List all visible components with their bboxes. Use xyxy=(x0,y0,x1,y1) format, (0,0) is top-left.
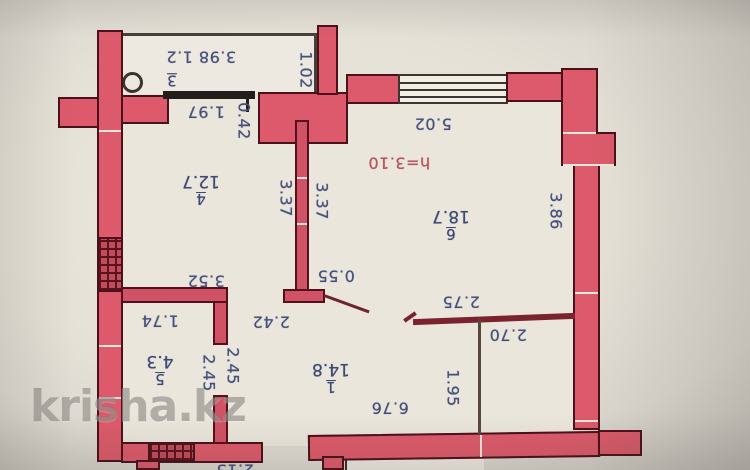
partition-rooms-4-6 xyxy=(295,120,309,292)
wall-tick xyxy=(563,164,614,166)
room-5-area: 4.3 xyxy=(146,351,173,371)
balcony-door-unit xyxy=(163,91,255,99)
dim-hall-width: 2.42 xyxy=(252,313,290,332)
outer-wall-bottomright-stub xyxy=(598,430,642,456)
room-1-label: 1 14.8 xyxy=(312,359,350,395)
wall-tick xyxy=(99,130,121,132)
room-3-label: 3 xyxy=(167,72,177,89)
room-1-area: 14.8 xyxy=(312,359,350,379)
wall-tick xyxy=(297,223,307,225)
ceiling-height-note: h=3.10 xyxy=(368,154,430,173)
dim-bottom-partial: 2.13 xyxy=(216,461,254,470)
wall-tick xyxy=(480,435,482,457)
dim-balcony-door: 1.97 xyxy=(187,103,225,122)
dim-wall-042: 0.42 xyxy=(235,102,254,140)
wall-stub-right-of-balcony xyxy=(317,25,338,95)
dim-bath-width: 2.75 xyxy=(442,293,480,312)
wall-tick xyxy=(575,292,598,294)
outer-wall-right-step xyxy=(561,132,616,166)
dim-room5-depth-a: 2.45 xyxy=(224,347,243,385)
outer-wall-right-upper xyxy=(561,68,598,134)
outer-wall-topleft-stub xyxy=(58,97,99,128)
window-symbol xyxy=(398,74,508,104)
krisha-watermark: krisha.kz xyxy=(30,381,246,432)
wall-under-balcony-left xyxy=(121,95,169,124)
dim-room6-width: 5.02 xyxy=(414,115,452,134)
circle-symbol-icon xyxy=(122,72,143,93)
room-6-area: 18.7 xyxy=(432,206,470,226)
balcony-outline-top xyxy=(121,33,317,36)
partition-foot-room6-door xyxy=(283,289,325,303)
outer-wall-bottom-right xyxy=(308,431,600,461)
vent-shaft-symbol-bottom xyxy=(148,443,195,462)
dim-balcony-size: 3.98 1.2 xyxy=(166,48,236,67)
floorplan-photo: 3.98 1.2 1.02 1.97 0.42 3.37 3.37 5.02 h… xyxy=(0,0,750,470)
vent-shaft-symbol-left xyxy=(97,237,123,292)
room-1-number: 1 xyxy=(312,379,350,396)
dim-room5-width: 1.74 xyxy=(141,312,179,331)
room-6-label: 6 18.7 xyxy=(432,206,470,242)
cutoff-room-below xyxy=(345,459,484,470)
outer-wall-right xyxy=(573,164,600,430)
wall-tick xyxy=(575,420,598,422)
dim-337-right: 3.37 xyxy=(313,182,332,220)
dim-door-stub: 0.55 xyxy=(317,267,355,286)
wall-tick xyxy=(297,177,307,179)
dim-337-left: 3.37 xyxy=(277,179,296,217)
bottom-mid-down-stub xyxy=(322,456,344,470)
dim-hall-length: 6.76 xyxy=(371,399,409,418)
room-4-label: 4 12.7 xyxy=(182,171,220,207)
wall-tick xyxy=(563,132,596,134)
thin-partition-line xyxy=(478,319,481,434)
dim-room4-width: 3.52 xyxy=(187,272,225,291)
outer-wall-top-right-of-window xyxy=(506,72,563,102)
dim-bath-width-inner: 2.70 xyxy=(489,326,527,345)
room-6-number: 6 xyxy=(432,226,470,243)
room-4-area: 12.7 xyxy=(182,171,220,191)
outer-wall-top-left-of-window xyxy=(346,74,400,104)
dim-bath-depth: 1.95 xyxy=(444,369,463,407)
room-3-number: 3 xyxy=(167,72,177,89)
dim-balcony-depth: 1.02 xyxy=(297,51,316,89)
room-4-number: 4 xyxy=(182,191,220,208)
dim-room6-depth: 3.86 xyxy=(547,192,566,230)
wall-tick xyxy=(99,345,121,347)
partition-room5-right-upper xyxy=(213,301,228,345)
